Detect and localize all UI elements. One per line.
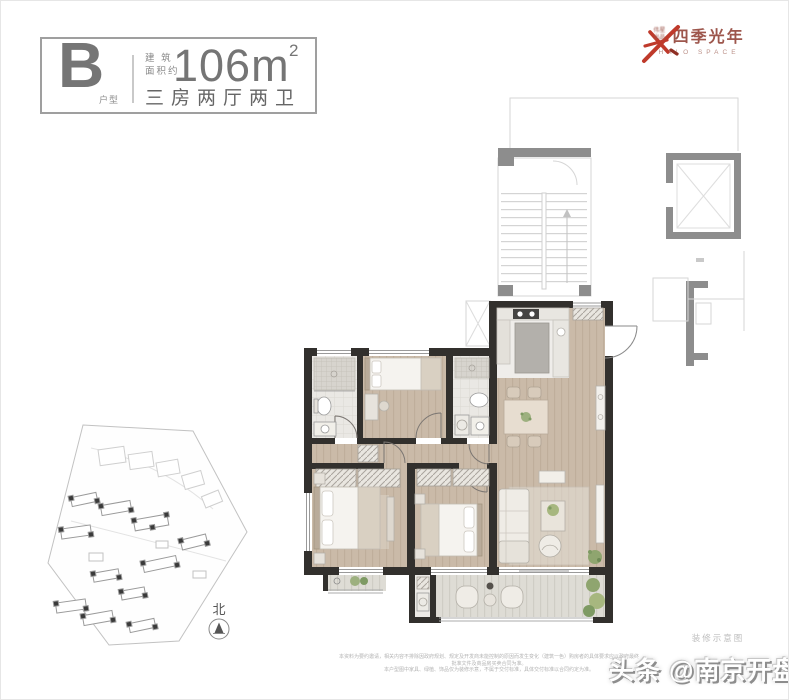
window	[369, 348, 429, 356]
console-table	[539, 471, 565, 483]
watermark: 头条 @南京开盘	[609, 651, 787, 687]
master-bed	[314, 487, 380, 549]
desk	[365, 394, 378, 420]
bedroom2-wardrobe	[417, 469, 489, 486]
north-label: 北	[212, 602, 225, 617]
sofa	[499, 489, 529, 563]
hall-cabinet	[358, 445, 378, 462]
window	[304, 493, 312, 551]
nightstand	[314, 473, 325, 484]
disclaimer-line1: 本资料为要约邀请，相关内容不排除因政府规划、规定及开发商未能控制的原因而发生变化…	[339, 654, 639, 667]
sliding-door	[499, 567, 589, 575]
bench	[387, 497, 394, 541]
sliding-door	[339, 567, 383, 575]
elevator-shaft	[666, 153, 741, 239]
floor-plant	[588, 550, 602, 564]
sideboard	[596, 386, 605, 430]
neighbor-outline	[653, 251, 744, 366]
window	[317, 348, 351, 356]
nightstand	[314, 553, 325, 564]
nightstand	[415, 549, 425, 559]
stairwell	[498, 148, 591, 296]
armchair	[539, 535, 561, 557]
entry-cabinet	[573, 308, 603, 320]
window	[431, 567, 487, 575]
kitchen-island	[515, 323, 549, 373]
master-wardrobe	[316, 469, 400, 487]
disclaimer: 本资料为要约邀请，相关内容不排除因政府规划、规定及开发商未能控制的原因而发生变化…	[339, 654, 639, 674]
entrance-door	[605, 326, 637, 358]
utility-fixtures	[417, 577, 429, 611]
plan-canvas: 北	[1, 1, 789, 700]
north-compass: 北	[209, 602, 229, 639]
window	[573, 301, 601, 308]
tv-console	[596, 485, 604, 543]
balcony-railing	[439, 618, 593, 621]
bedroom2-bed	[421, 504, 482, 556]
nightstand	[415, 494, 425, 504]
master-balcony-railing	[328, 590, 383, 593]
pipe-shaft	[466, 301, 490, 346]
desk-chair	[379, 401, 389, 411]
plan-caption: 装修示意图	[673, 632, 763, 644]
disclaimer-line2: 本户型图中家具、绿植、饰品仅为装修示意，不属于交付标准，具体交付标准以合同约定为…	[384, 667, 594, 673]
floorplan-poster: B 户型 建 筑面积约 106m 2 三房两厅两卫 伟星 出品 · 四季光年 H…	[0, 0, 789, 700]
coffee-table	[541, 501, 565, 531]
bedroom3-bed	[365, 358, 441, 390]
